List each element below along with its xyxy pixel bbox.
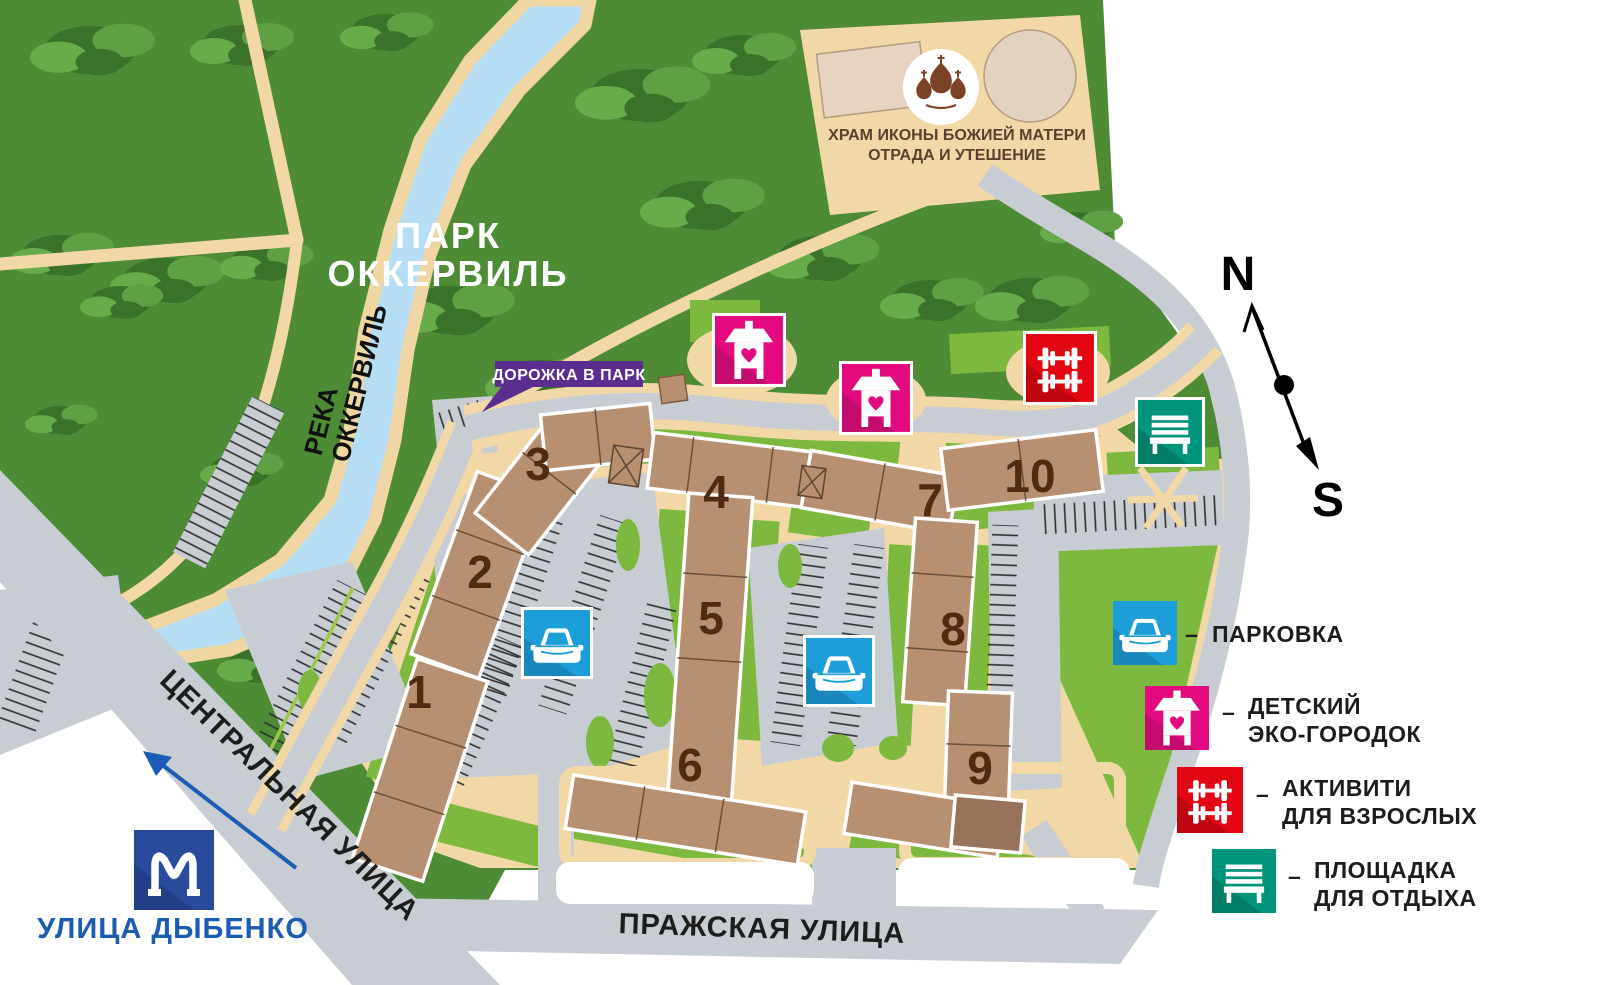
bench-icon bbox=[1212, 849, 1276, 913]
adult-activity-marker bbox=[1023, 331, 1097, 405]
legend-separator: – bbox=[1185, 621, 1198, 647]
legend-label-line1: ПЛОЩАДКА bbox=[1314, 857, 1457, 883]
church-plot: ХРАМ ИКОНЫ БОЖИЕЙ МАТЕРИ ОТРАДА И УТЕШЕН… bbox=[800, 15, 1100, 215]
legend-label-line2: ДЛЯ ВЗРОСЛЫХ bbox=[1282, 803, 1477, 829]
legend-separator: – bbox=[1256, 781, 1269, 807]
building-number-1: 1 bbox=[406, 666, 432, 718]
building-number-8: 8 bbox=[940, 603, 966, 655]
kids-playhouse-icon bbox=[1145, 686, 1209, 750]
building-number-6: 6 bbox=[677, 739, 703, 791]
kids-playground-marker-2 bbox=[839, 361, 913, 435]
parking-marker-2 bbox=[803, 635, 875, 707]
building-number-9: 9 bbox=[967, 742, 993, 794]
legend-label-line1: АКТИВИТИ bbox=[1282, 775, 1412, 801]
building-number-3: 3 bbox=[525, 438, 551, 490]
church-label-line1: ХРАМ ИКОНЫ БОЖИЕЙ МАТЕРИ bbox=[828, 125, 1086, 144]
building-number-2: 2 bbox=[467, 546, 493, 598]
parking-marker-1 bbox=[521, 607, 593, 679]
legend-item-rest-area: – ПЛОЩАДКА ДЛЯ ОТДЫХА bbox=[1212, 849, 1477, 913]
legend-label-line2: ДЛЯ ОТДЫХА bbox=[1314, 885, 1477, 911]
svg-text:ОККЕРВИЛЬ: ОККЕРВИЛЬ bbox=[328, 253, 569, 294]
metro-station-label: УЛИЦА ДЫБЕНКО bbox=[37, 913, 309, 945]
kids-playground-marker-1 bbox=[712, 313, 786, 387]
legend-separator: – bbox=[1288, 863, 1301, 889]
building-number-7: 7 bbox=[917, 474, 943, 526]
residential-complex-map: ХРАМ ИКОНЫ БОЖИЕЙ МАТЕРИ ОТРАДА И УТЕШЕН… bbox=[0, 0, 1600, 985]
building-number-5: 5 bbox=[698, 592, 724, 644]
legend-label-line1: ДЕТСКИЙ bbox=[1248, 692, 1361, 719]
kiosk bbox=[658, 374, 687, 403]
svg-text:ДОРОЖКА В ПАРК: ДОРОЖКА В ПАРК bbox=[492, 367, 645, 384]
building-9-dark-wing bbox=[951, 795, 1025, 853]
building-number-10: 10 bbox=[1004, 450, 1055, 502]
legend-label-line2: ЭКО-ГОРОДОК bbox=[1248, 721, 1421, 747]
church-label-line2: ОТРАДА И УТЕШЕНИЕ bbox=[868, 147, 1046, 164]
svg-text:ПАРК: ПАРК bbox=[395, 215, 501, 256]
compass-south-label: S bbox=[1312, 474, 1344, 527]
dumbbell-icon bbox=[1177, 767, 1243, 833]
rest-area-marker bbox=[1135, 397, 1205, 467]
metro-icon bbox=[134, 830, 214, 910]
compass-north-label: N bbox=[1221, 248, 1256, 301]
bridge-4-7 bbox=[798, 465, 826, 498]
legend-separator: – bbox=[1222, 699, 1235, 725]
legend-label: ПАРКОВКА bbox=[1212, 621, 1344, 647]
bridge-3-4 bbox=[609, 445, 644, 487]
building-number-4: 4 bbox=[703, 466, 729, 518]
parking-icon bbox=[1113, 601, 1177, 665]
